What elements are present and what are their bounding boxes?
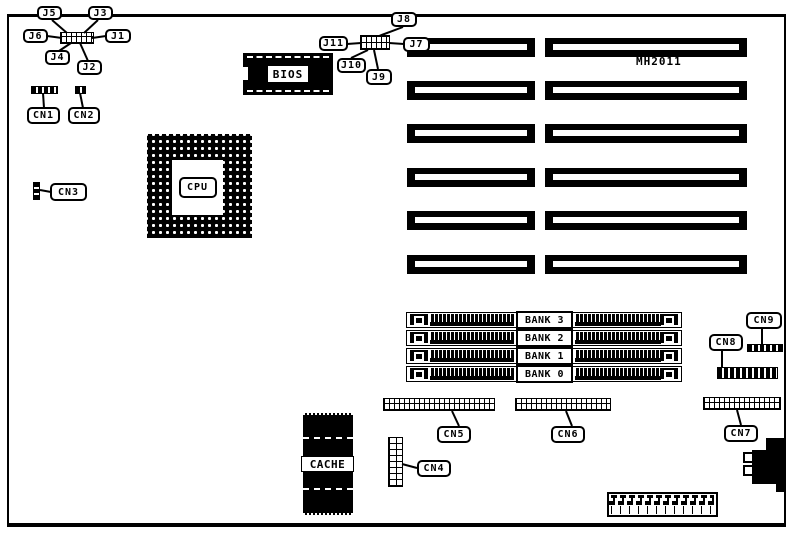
expansion-slot	[545, 211, 747, 230]
connector-label-cn3: CN3	[50, 183, 87, 201]
expansion-slot	[545, 124, 747, 143]
motherboard-diagram: J5 J3 J6 J1 J4 J2 CN1 CN2 CN3 CPU BIOS J…	[0, 0, 791, 537]
jumper-label-j10: J10	[337, 58, 366, 73]
jumper-label-j1: J1	[105, 29, 131, 43]
connector-cn2	[75, 86, 86, 94]
cpu-chip-label: CPU	[179, 177, 217, 198]
jumper-label-j4: J4	[45, 50, 70, 65]
simm-socket-bank2: BANK 2	[406, 330, 682, 346]
connector-label-cn2: CN2	[68, 107, 100, 124]
jumper-label-j11: J11	[319, 36, 348, 51]
pin-header-cn4	[388, 437, 403, 487]
simm-socket-bank3: BANK 3	[406, 312, 682, 328]
connector-cn9	[747, 344, 783, 352]
simm-socket-bank1: BANK 1	[406, 348, 682, 364]
jumper-label-j5: J5	[37, 6, 62, 20]
bank-label: BANK 2	[516, 329, 573, 347]
pin-header-cn6	[515, 398, 611, 411]
connector-cn1	[31, 86, 58, 94]
expansion-slot	[545, 168, 747, 187]
bank-label: BANK 1	[516, 347, 573, 365]
jumper-label-j8: J8	[391, 12, 417, 27]
jumper-label-j9: J9	[366, 69, 392, 85]
expansion-slot	[545, 38, 747, 57]
jumper-label-j2: J2	[77, 60, 102, 75]
bios-chip: BIOS	[243, 53, 333, 95]
connector-label-cn9: CN9	[746, 312, 782, 329]
expansion-slot	[407, 168, 535, 187]
expansion-slot	[407, 255, 535, 274]
connector-label-cn8: CN8	[709, 334, 743, 351]
connector-label-cn5: CN5	[437, 426, 471, 443]
bank-label: BANK 3	[516, 311, 573, 329]
connector-label-cn6: CN6	[551, 426, 585, 443]
power-connector	[607, 492, 718, 517]
connector-label-cn4: CN4	[417, 460, 451, 477]
cache-chip-label: CACHE	[301, 456, 354, 472]
bios-notch	[243, 67, 248, 80]
jumper-block-j1-j6	[60, 32, 94, 44]
bank-label: BANK 0	[516, 365, 573, 383]
bios-chip-label: BIOS	[268, 66, 308, 82]
cache-chips: CACHE	[303, 413, 353, 515]
connector-cn8	[717, 367, 778, 379]
jumper-block-j7-j11	[360, 35, 390, 50]
connector-cn3	[33, 182, 40, 200]
connector-label-cn7: CN7	[724, 425, 758, 442]
connector-label-cn1: CN1	[27, 107, 60, 124]
cpu-socket: CPU	[147, 134, 252, 238]
cpu-socket-center: CPU	[172, 160, 223, 215]
expansion-slot	[407, 211, 535, 230]
pin-header-cn7	[703, 397, 781, 410]
expansion-slot	[545, 81, 747, 100]
jumper-label-j7: J7	[403, 37, 430, 52]
pin-header-cn5	[383, 398, 495, 411]
jumper-label-j6: J6	[23, 29, 48, 43]
expansion-slot	[407, 81, 535, 100]
jumper-label-j3: J3	[88, 6, 113, 20]
simm-socket-bank0: BANK 0	[406, 366, 682, 382]
expansion-slot	[407, 124, 535, 143]
expansion-slot	[545, 255, 747, 274]
